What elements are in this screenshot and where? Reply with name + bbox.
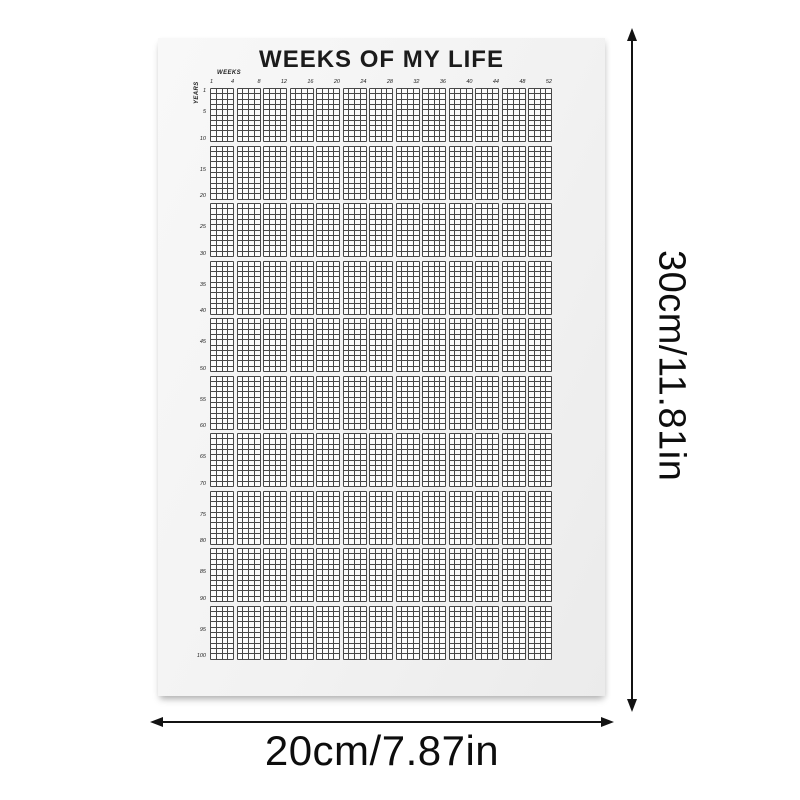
week-cell xyxy=(508,137,513,141)
week-cell xyxy=(535,319,540,323)
week-cell xyxy=(535,94,540,98)
week-cell xyxy=(476,335,481,339)
week-cell xyxy=(461,398,466,402)
week-cell xyxy=(361,523,366,527)
week-cell xyxy=(488,335,493,339)
week-cell xyxy=(308,162,313,166)
week-cell xyxy=(488,147,493,151)
week-cell xyxy=(476,131,481,135)
week-cell xyxy=(217,628,222,632)
week-cell xyxy=(329,324,334,328)
week-cell xyxy=(223,121,228,125)
week-cell xyxy=(238,414,243,418)
week-cell xyxy=(349,461,354,465)
week-cell xyxy=(270,137,275,141)
week-cell xyxy=(450,319,455,323)
week-cell xyxy=(376,581,381,585)
week-cell xyxy=(461,471,466,475)
week-cell xyxy=(370,392,375,396)
week-cell xyxy=(408,162,413,166)
week-cell xyxy=(493,157,498,161)
week-cell xyxy=(302,513,307,517)
week-cell xyxy=(450,513,455,517)
week-cell xyxy=(467,387,472,391)
week-cell xyxy=(488,523,493,527)
week-cell xyxy=(387,367,392,371)
week-cell xyxy=(402,466,407,470)
week-cell xyxy=(296,288,301,292)
week-cell xyxy=(382,576,387,580)
week-cell xyxy=(276,367,281,371)
week-cell xyxy=(535,121,540,125)
week-cell xyxy=(450,246,455,250)
week-cell xyxy=(476,110,481,114)
week-cell xyxy=(329,414,334,418)
week-cell xyxy=(238,513,243,517)
week-cell xyxy=(429,121,434,125)
week-cell xyxy=(264,382,269,386)
week-cell xyxy=(361,105,366,109)
week-cell xyxy=(238,110,243,114)
week-cell xyxy=(211,586,216,590)
week-cell xyxy=(450,398,455,402)
week-cell xyxy=(317,215,322,219)
week-cell xyxy=(334,324,339,328)
week-cell xyxy=(243,644,248,648)
week-cell xyxy=(217,105,222,109)
week-cell xyxy=(488,319,493,323)
week-cell xyxy=(361,513,366,517)
week-cell xyxy=(476,137,481,141)
week-cell xyxy=(546,324,551,328)
week-cell xyxy=(476,408,481,412)
week-cell xyxy=(493,450,498,454)
week-cell xyxy=(546,403,551,407)
week-cell xyxy=(508,277,513,281)
week-cell xyxy=(276,267,281,271)
week-cell xyxy=(476,340,481,344)
week-cell xyxy=(514,100,519,104)
week-cell xyxy=(376,539,381,543)
week-cell xyxy=(503,100,508,104)
week-cell xyxy=(450,340,455,344)
week-cell xyxy=(296,461,301,465)
week-cell xyxy=(238,455,243,459)
week-cell xyxy=(329,340,334,344)
week-cell xyxy=(541,346,546,350)
week-cell xyxy=(414,382,419,386)
week-cell xyxy=(296,246,301,250)
week-cell xyxy=(291,534,296,538)
week-cell xyxy=(429,408,434,412)
week-cell xyxy=(370,252,375,256)
week-cell xyxy=(276,523,281,527)
week-cell xyxy=(308,607,313,611)
week-cell xyxy=(243,597,248,601)
week-cell xyxy=(296,518,301,522)
week-cell xyxy=(270,361,275,365)
week-cell xyxy=(217,94,222,98)
week-cell-block xyxy=(263,433,287,487)
week-cell xyxy=(503,387,508,391)
week-cell xyxy=(361,403,366,407)
week-cell xyxy=(323,554,328,558)
week-cell xyxy=(349,241,354,245)
week-cell xyxy=(270,194,275,198)
week-cell xyxy=(482,246,487,250)
week-cell xyxy=(361,398,366,402)
week-cell xyxy=(541,534,546,538)
week-cell xyxy=(334,392,339,396)
week-cell xyxy=(546,184,551,188)
week-cell xyxy=(323,220,328,224)
week-cell xyxy=(308,513,313,517)
week-cell xyxy=(217,121,222,125)
week-cell xyxy=(467,492,472,496)
week-cell xyxy=(414,534,419,538)
week-cell xyxy=(238,507,243,511)
week-cell xyxy=(482,591,487,595)
week-cell xyxy=(387,408,392,412)
week-cell xyxy=(535,523,540,527)
week-cell xyxy=(397,116,402,120)
week-cell xyxy=(529,361,534,365)
week-cell xyxy=(296,173,301,177)
week-cell xyxy=(450,492,455,496)
week-cell xyxy=(238,471,243,475)
week-cell xyxy=(376,346,381,350)
week-cell xyxy=(535,356,540,360)
week-cell xyxy=(455,377,460,381)
week-cell xyxy=(281,272,286,276)
week-cell xyxy=(223,346,228,350)
week-cell xyxy=(211,419,216,423)
week-cell xyxy=(376,288,381,292)
week-cell xyxy=(323,267,328,271)
week-cell xyxy=(355,445,360,449)
week-cell xyxy=(329,335,334,339)
week-cell xyxy=(503,367,508,371)
week-cell xyxy=(217,638,222,642)
week-cell xyxy=(429,471,434,475)
week-cell xyxy=(211,94,216,98)
week-cell xyxy=(255,173,260,177)
week-cell xyxy=(228,209,233,213)
week-cell xyxy=(482,178,487,182)
week-cell xyxy=(281,461,286,465)
week-cell xyxy=(541,241,546,245)
week-cell xyxy=(370,482,375,486)
week-cell xyxy=(423,502,428,506)
week-cell xyxy=(302,586,307,590)
week-cell xyxy=(276,518,281,522)
week-cell xyxy=(414,439,419,443)
week-cell-block xyxy=(475,433,499,487)
week-cell xyxy=(450,382,455,386)
week-cell xyxy=(435,492,440,496)
week-cell xyxy=(429,330,434,334)
week-cell xyxy=(535,231,540,235)
week-cell xyxy=(467,482,472,486)
week-cell xyxy=(361,560,366,564)
week-cell xyxy=(344,434,349,438)
week-cell xyxy=(223,439,228,443)
week-cell xyxy=(429,502,434,506)
week-cell xyxy=(355,398,360,402)
week-cell xyxy=(493,492,498,496)
week-cell xyxy=(476,414,481,418)
week-cell xyxy=(270,116,275,120)
week-cell xyxy=(255,476,260,480)
week-cell-block xyxy=(449,491,473,545)
week-cell xyxy=(291,382,296,386)
week-cell xyxy=(508,586,513,590)
week-cell xyxy=(450,126,455,130)
week-cell xyxy=(281,293,286,297)
week-cell xyxy=(238,189,243,193)
week-cell xyxy=(249,398,254,402)
week-cell xyxy=(276,539,281,543)
week-cell xyxy=(270,628,275,632)
week-cell xyxy=(376,507,381,511)
week-cell xyxy=(429,445,434,449)
week-cell xyxy=(334,330,339,334)
week-cell xyxy=(238,403,243,407)
week-cell xyxy=(503,225,508,229)
week-cell xyxy=(296,419,301,423)
week-cell xyxy=(423,173,428,177)
week-cell xyxy=(228,597,233,601)
week-cell xyxy=(482,184,487,188)
week-cell-block xyxy=(290,376,314,430)
week-cell xyxy=(334,157,339,161)
week-cell xyxy=(488,267,493,271)
week-cell xyxy=(514,126,519,130)
week-cell xyxy=(546,152,551,156)
week-cell xyxy=(370,523,375,527)
week-cell xyxy=(334,408,339,412)
week-cell xyxy=(423,116,428,120)
week-cell xyxy=(291,455,296,459)
year-tick-label: 85 xyxy=(192,570,206,575)
week-cell xyxy=(503,476,508,480)
week-cell xyxy=(493,304,498,308)
week-cell xyxy=(435,560,440,564)
week-cell xyxy=(508,246,513,250)
week-cell xyxy=(414,299,419,303)
week-cell xyxy=(228,560,233,564)
week-cell xyxy=(249,330,254,334)
week-cell xyxy=(361,241,366,245)
week-cell xyxy=(308,591,313,595)
week-cell xyxy=(435,424,440,428)
week-cell xyxy=(546,597,551,601)
week-cell xyxy=(296,147,301,151)
week-cell xyxy=(228,94,233,98)
week-cell xyxy=(493,194,498,198)
week-cell xyxy=(423,241,428,245)
week-cell xyxy=(264,523,269,527)
week-cell xyxy=(370,209,375,213)
week-cell xyxy=(423,152,428,156)
week-cell xyxy=(529,293,534,297)
week-cell xyxy=(482,110,487,114)
week-cell xyxy=(467,94,472,98)
week-cell xyxy=(238,377,243,381)
week-cell xyxy=(514,539,519,543)
week-cell xyxy=(361,299,366,303)
week-cell xyxy=(361,267,366,271)
week-cell xyxy=(243,482,248,486)
week-cell xyxy=(467,518,472,522)
week-cell xyxy=(291,408,296,412)
week-cell xyxy=(467,267,472,271)
week-cell xyxy=(334,419,339,423)
week-cell xyxy=(440,346,445,350)
week-cell xyxy=(270,534,275,538)
week-cell xyxy=(488,351,493,355)
week-cell xyxy=(323,482,328,486)
week-cell xyxy=(382,367,387,371)
week-cell xyxy=(270,482,275,486)
week-cell xyxy=(503,581,508,585)
week-cell xyxy=(376,439,381,443)
week-cell xyxy=(423,597,428,601)
week-cell xyxy=(435,157,440,161)
week-cell xyxy=(270,252,275,256)
week-cell xyxy=(308,304,313,308)
week-cell xyxy=(387,288,392,292)
week-cell xyxy=(520,414,525,418)
week-cell xyxy=(376,299,381,303)
week-cell xyxy=(302,638,307,642)
week-cell xyxy=(302,293,307,297)
week-cell xyxy=(520,168,525,172)
week-cell xyxy=(211,309,216,313)
week-cell xyxy=(493,147,498,151)
week-cell xyxy=(514,565,519,569)
week-cell xyxy=(317,523,322,527)
week-cell xyxy=(302,607,307,611)
week-cell xyxy=(323,518,328,522)
week-cell xyxy=(370,319,375,323)
week-cell xyxy=(387,283,392,287)
week-cell xyxy=(488,565,493,569)
week-cell xyxy=(529,267,534,271)
week-cell xyxy=(270,152,275,156)
week-cell xyxy=(423,408,428,412)
week-cell xyxy=(397,565,402,569)
week-cell-block xyxy=(316,548,340,602)
week-cell xyxy=(329,434,334,438)
week-cell xyxy=(488,293,493,297)
week-cell xyxy=(264,439,269,443)
week-cell xyxy=(370,597,375,601)
week-cell xyxy=(211,330,216,334)
week-cell xyxy=(408,570,413,574)
week-cell xyxy=(429,476,434,480)
week-cell-block xyxy=(237,203,261,257)
week-cell xyxy=(467,215,472,219)
week-cell xyxy=(546,105,551,109)
week-cell xyxy=(361,529,366,533)
week-cell-block xyxy=(422,491,446,545)
week-cell xyxy=(503,445,508,449)
week-cell xyxy=(270,549,275,553)
week-cell xyxy=(520,408,525,412)
week-cell xyxy=(291,330,296,334)
week-cell xyxy=(211,215,216,219)
week-cell xyxy=(414,419,419,423)
week-cell xyxy=(217,189,222,193)
week-cell xyxy=(476,534,481,538)
week-cell xyxy=(370,241,375,245)
week-cell xyxy=(238,445,243,449)
week-cell xyxy=(435,549,440,553)
week-cell xyxy=(323,319,328,323)
week-cell xyxy=(270,283,275,287)
week-cell xyxy=(302,644,307,648)
week-cell xyxy=(370,162,375,166)
week-cell xyxy=(255,507,260,511)
week-cell xyxy=(382,204,387,208)
week-cell xyxy=(546,121,551,125)
week-cell xyxy=(414,131,419,135)
week-cell xyxy=(355,534,360,538)
week-cell xyxy=(370,565,375,569)
week-cell xyxy=(450,565,455,569)
week-cell xyxy=(243,262,248,266)
week-cell xyxy=(382,518,387,522)
week-cell xyxy=(535,570,540,574)
week-cell xyxy=(302,324,307,328)
week-cell xyxy=(217,330,222,334)
week-cell xyxy=(541,471,546,475)
week-cell xyxy=(376,549,381,553)
week-cell xyxy=(387,570,392,574)
week-cell xyxy=(243,356,248,360)
week-cell xyxy=(211,434,216,438)
week-cell xyxy=(387,137,392,141)
week-cell xyxy=(243,617,248,621)
week-cell xyxy=(349,209,354,213)
week-cell xyxy=(291,121,296,125)
week-cell xyxy=(249,262,254,266)
week-cell xyxy=(217,398,222,402)
week-cell xyxy=(238,116,243,120)
week-cell xyxy=(243,209,248,213)
week-cell xyxy=(302,267,307,271)
week-cell xyxy=(488,105,493,109)
week-cell xyxy=(514,414,519,418)
week-cell xyxy=(323,288,328,292)
week-cell xyxy=(493,121,498,125)
week-cell xyxy=(334,492,339,496)
week-cell-block xyxy=(528,318,552,372)
week-cell xyxy=(302,466,307,470)
week-cell xyxy=(435,137,440,141)
week-cell xyxy=(541,304,546,308)
week-cell xyxy=(349,121,354,125)
week-cell xyxy=(302,105,307,109)
week-cell xyxy=(281,116,286,120)
week-cell xyxy=(317,241,322,245)
week-cell xyxy=(211,466,216,470)
week-cell xyxy=(387,168,392,172)
week-cell xyxy=(334,466,339,470)
week-cell xyxy=(291,576,296,580)
week-cell xyxy=(508,513,513,517)
